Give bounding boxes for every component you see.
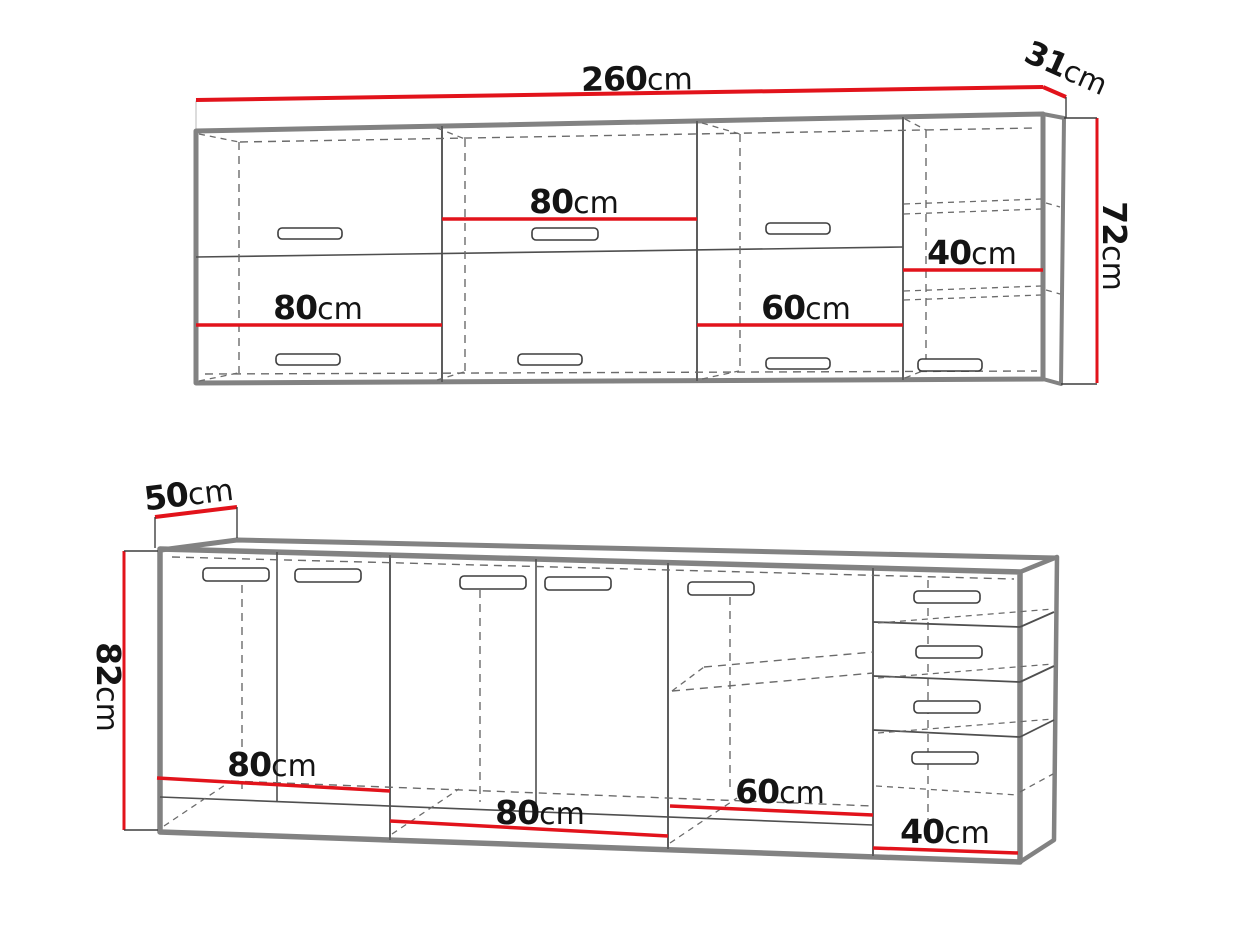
- dim-label-upper-section-3: 60cm: [761, 288, 851, 327]
- door-handle: [545, 577, 611, 590]
- door-handle: [688, 582, 754, 595]
- dim-unit: cm: [805, 292, 851, 327]
- dim-label-upper-section-4: 40cm: [927, 233, 1017, 272]
- dim-label-base-height: 82cm: [89, 642, 128, 732]
- dim-value: 50: [142, 474, 190, 518]
- door-handle: [295, 569, 361, 582]
- dim-value: 82: [89, 642, 128, 686]
- dim-value: 60: [735, 772, 779, 811]
- base-side-panel: [1020, 557, 1057, 862]
- drawer-handle: [914, 701, 980, 713]
- door-handle: [766, 223, 830, 234]
- dim-unit: cm: [647, 62, 693, 98]
- dim-value: 80: [273, 288, 317, 327]
- dim-label-upper-section-2: 80cm: [529, 182, 619, 221]
- dim-label-upper-height: 72cm: [1095, 201, 1134, 291]
- dim-unit: cm: [271, 749, 317, 784]
- dim-label-base-section-2: 80cm: [495, 793, 585, 832]
- dim-value: 80: [529, 182, 573, 221]
- door-handle: [278, 228, 342, 239]
- dim-label-base-section-3: 60cm: [735, 772, 825, 811]
- drawer-handle: [912, 752, 978, 764]
- drawer-handle: [916, 646, 982, 658]
- dim-unit: cm: [1095, 245, 1130, 291]
- dim-value: 60: [761, 288, 805, 327]
- dim-value: 80: [227, 745, 271, 784]
- dim-unit: cm: [89, 686, 124, 732]
- drawer-handle: [914, 591, 980, 603]
- door-handle: [203, 568, 269, 581]
- dim-value: 80: [495, 793, 539, 832]
- dim-unit: cm: [944, 816, 990, 851]
- dim-value: 260: [581, 59, 648, 99]
- dim-label-upper-section-1: 80cm: [273, 288, 363, 327]
- dim-value: 40: [900, 812, 944, 851]
- door-handle: [460, 576, 526, 589]
- dim-label-upper-width: 260cm: [581, 58, 693, 99]
- dim-unit: cm: [779, 776, 825, 811]
- dim-label-base-section-1: 80cm: [227, 745, 317, 784]
- upper-front-face: [196, 114, 1043, 383]
- dim-value: 72: [1095, 201, 1134, 245]
- dim-unit: cm: [971, 237, 1017, 272]
- dim-unit: cm: [317, 292, 363, 327]
- door-handle: [518, 354, 582, 365]
- base-front-face: [160, 549, 1020, 862]
- door-handle: [532, 228, 598, 240]
- furniture-dimension-diagram: 260cm 31cm 72cm 80cm 80cm 60cm 40cm: [0, 0, 1237, 928]
- door-handle: [276, 354, 340, 365]
- dim-unit: cm: [573, 186, 619, 221]
- door-handle: [766, 358, 830, 369]
- dim-label-base-section-4: 40cm: [900, 812, 990, 851]
- upper-side-panel: [1043, 114, 1064, 384]
- door-handle: [918, 359, 982, 371]
- dim-value: 40: [927, 233, 971, 272]
- dim-unit: cm: [186, 473, 236, 513]
- dim-unit: cm: [539, 797, 585, 832]
